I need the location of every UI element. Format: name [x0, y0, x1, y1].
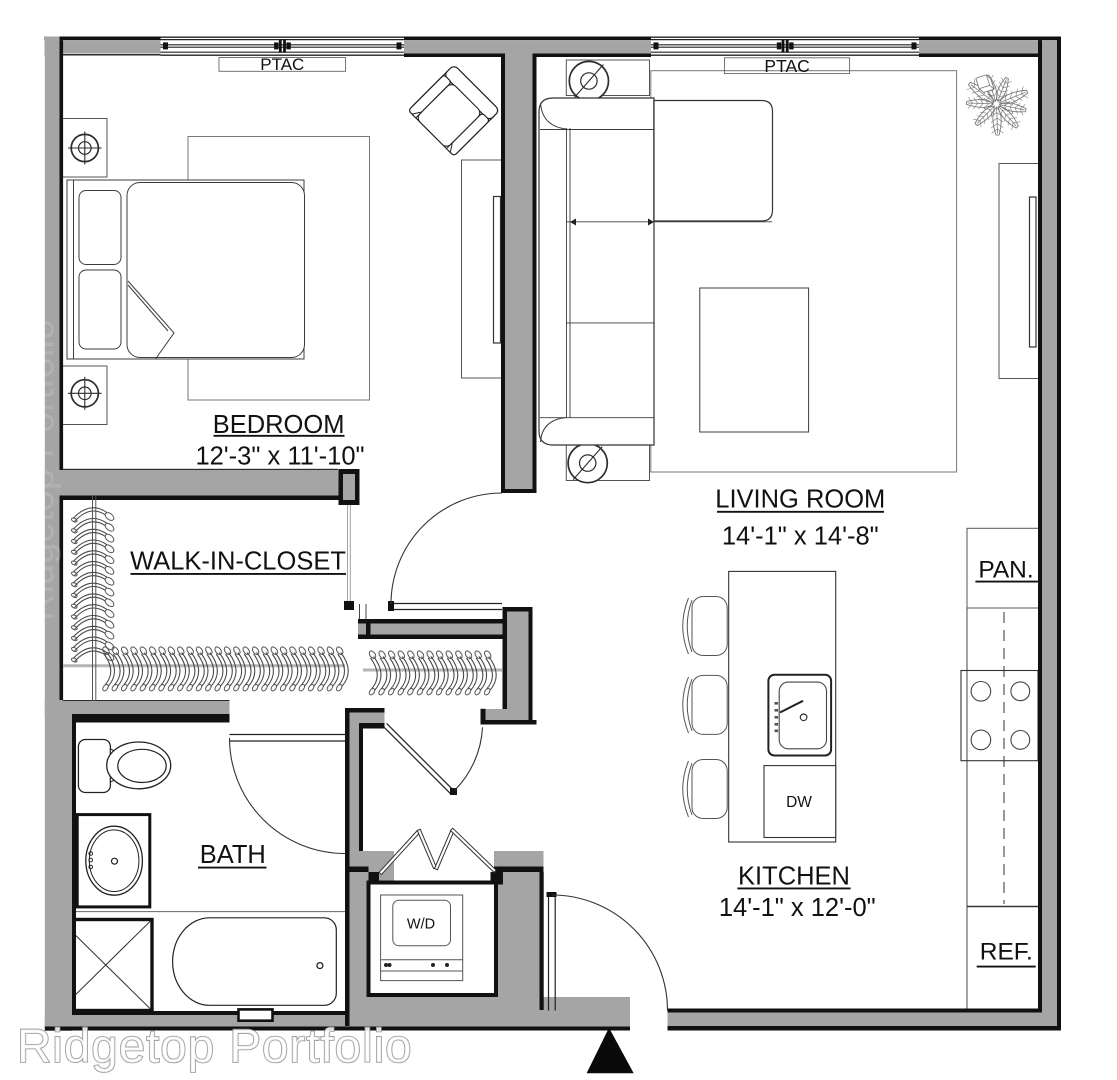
svg-text:BEDROOM: BEDROOM — [213, 411, 345, 439]
svg-text:DW: DW — [786, 794, 812, 811]
svg-text:PAN.: PAN. — [978, 557, 1033, 584]
svg-text:14'-1" x 14'-8": 14'-1" x 14'-8" — [722, 522, 879, 550]
svg-text:KITCHEN: KITCHEN — [738, 863, 850, 891]
svg-text:WALK-IN-CLOSET: WALK-IN-CLOSET — [130, 547, 346, 575]
svg-text:Ridgetop Portfolio: Ridgetop Portfolio — [17, 1020, 413, 1073]
svg-text:BATH: BATH — [200, 841, 266, 869]
svg-text:Ridgetop Portfolio: Ridgetop Portfolio — [20, 319, 62, 621]
svg-text:REF.: REF. — [980, 939, 1033, 966]
svg-text:W/D: W/D — [407, 917, 435, 933]
svg-text:LIVING ROOM: LIVING ROOM — [715, 486, 885, 514]
svg-text:14'-1" x 12'-0": 14'-1" x 12'-0" — [719, 894, 876, 922]
svg-text:12'-3" x 11'-10": 12'-3" x 11'-10" — [195, 442, 364, 470]
svg-text:PTAC: PTAC — [260, 55, 304, 74]
svg-text:PTAC: PTAC — [764, 56, 809, 76]
